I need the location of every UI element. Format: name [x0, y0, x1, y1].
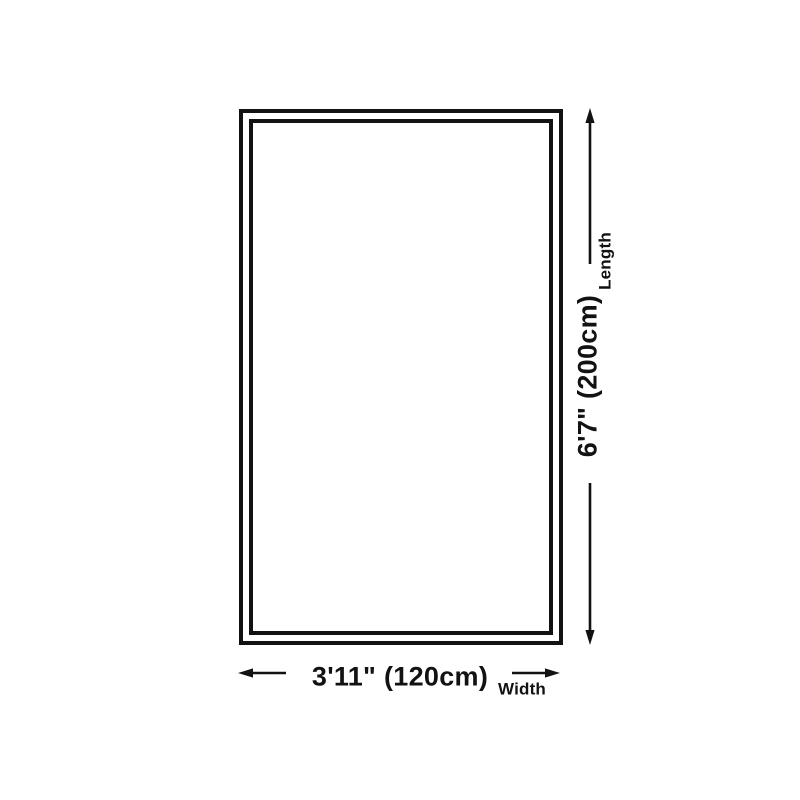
length-axis-label: Length [597, 232, 614, 290]
arrow-down-icon [581, 483, 599, 645]
rug-dimension-diagram: Length 6'7" (200cm) 3'11" (120cm) Width [0, 0, 800, 800]
width-axis-label: Width [498, 681, 546, 698]
rug-outer-border [239, 109, 563, 645]
width-value-label: 3'11" (120cm) [312, 664, 488, 691]
arrow-left-icon [238, 664, 286, 682]
rug-inner-border [249, 119, 553, 635]
length-value-label: 6'7" (200cm) [575, 295, 602, 457]
